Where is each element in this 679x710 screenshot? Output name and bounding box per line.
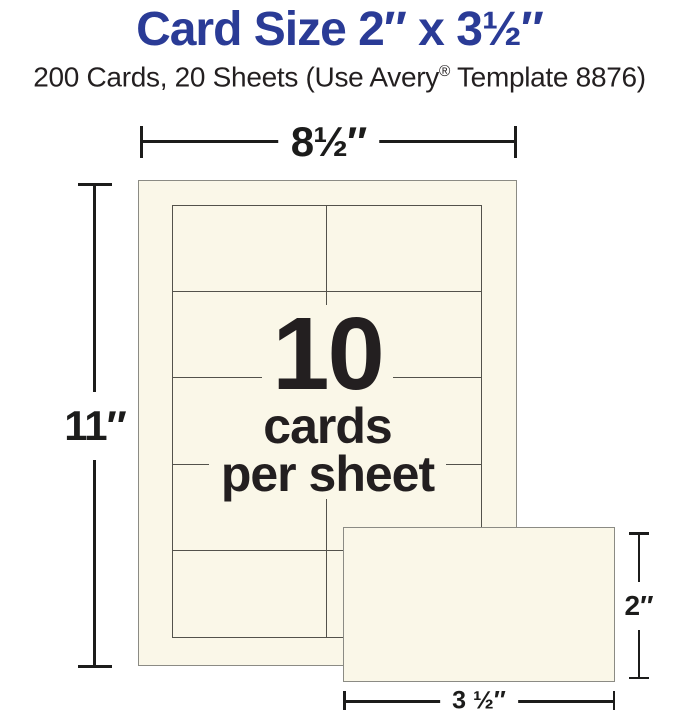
sheet-width-label: 8½″ — [278, 118, 380, 166]
sheet-height-label: 11″ — [61, 392, 129, 460]
dimension-end-cap — [78, 183, 112, 186]
card-cell — [173, 206, 327, 292]
dimension-card-height: 2″ — [629, 532, 649, 679]
dimension-sheet-height: 11″ — [78, 183, 112, 668]
card-height-label: 2″ — [623, 582, 656, 630]
dimension-card-width: 3 ½″ — [343, 691, 615, 710]
card-count-caption-line2: per sheet — [138, 449, 517, 499]
registered-trademark-symbol: ® — [439, 63, 450, 80]
page-subtitle: 200 Cards, 20 Sheets (Use Avery® Templat… — [0, 55, 679, 94]
card-width-label: 3 ½″ — [440, 686, 518, 710]
card-count: 10 — [262, 305, 393, 403]
dimension-end-cap — [514, 126, 517, 158]
subtitle-text-pre: 200 Cards, 20 Sheets (Use Avery — [33, 61, 439, 92]
card-cell — [327, 206, 481, 292]
card-cell — [173, 551, 327, 637]
dimension-end-cap — [78, 665, 112, 668]
dimension-end-cap — [140, 126, 143, 158]
dimension-end-cap — [613, 691, 616, 710]
subtitle-text-post: Template 8876) — [450, 61, 646, 92]
single-card-outline — [343, 527, 615, 682]
dimension-end-cap — [343, 691, 346, 710]
cards-per-sheet-callout: 10 cards per sheet — [138, 305, 517, 499]
page-title: Card Size 2″ x 3½″ — [0, 2, 679, 58]
dimension-sheet-width: 8½″ — [140, 126, 517, 158]
product-infographic: Card Size 2″ x 3½″ 200 Cards, 20 Sheets … — [0, 0, 679, 710]
card-count-line: 10 — [138, 305, 517, 403]
dimension-end-cap — [629, 677, 649, 680]
dimension-end-cap — [629, 532, 649, 535]
card-count-caption-line1: cards — [138, 403, 517, 449]
